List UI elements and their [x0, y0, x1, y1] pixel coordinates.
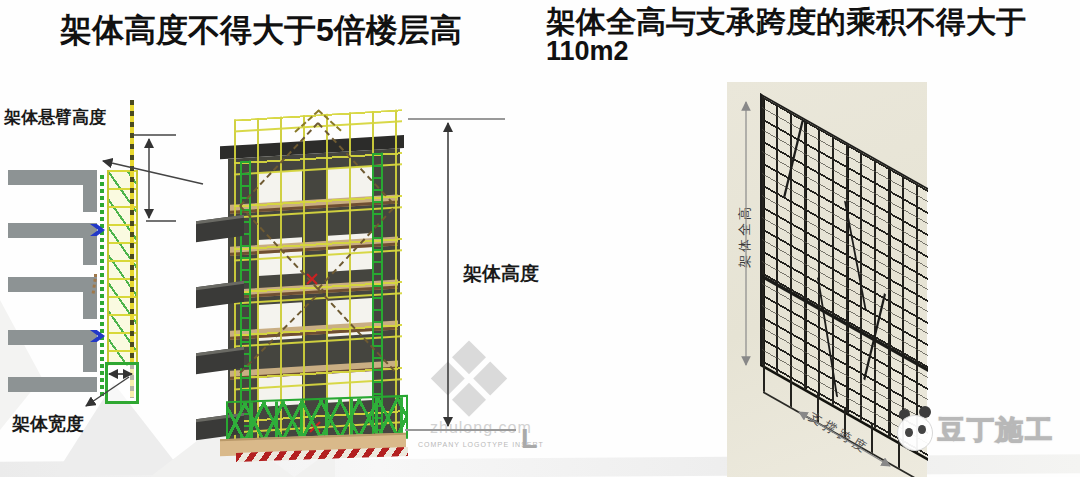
title-right-line2: 110m2 — [546, 38, 1066, 64]
brace-cross-node — [305, 272, 319, 286]
zhulong-watermark-icon — [429, 340, 508, 419]
floor-slab — [8, 170, 97, 185]
background-watermark-shape — [0, 300, 42, 430]
wire-brace — [817, 277, 838, 397]
brand-logo-text: 豆丁施工 — [938, 412, 1054, 448]
watermark-initial: L — [521, 424, 538, 455]
floor-slab-edge — [83, 185, 97, 212]
frame-height-label: 架体高度 — [463, 261, 539, 287]
cantilever-height-label: 架体悬臂高度 — [4, 106, 106, 129]
title-left-post: 倍楼层高 — [334, 12, 462, 48]
wire-brace — [783, 119, 804, 198]
floor-slab-edge — [83, 345, 97, 372]
floor-slab-edge — [83, 292, 97, 319]
watermark-brand-text: zhulong.com — [430, 419, 532, 437]
title-left-number: 5 — [316, 12, 334, 48]
floor-slab-edge — [83, 238, 97, 265]
douding-panda-eye — [905, 428, 913, 437]
douding-panda-icon — [897, 415, 933, 451]
total-height-label: 架体全高 — [736, 188, 754, 284]
scaffold-walkway-band — [762, 274, 928, 372]
floor-slab — [8, 330, 97, 345]
floor-slab — [8, 223, 97, 238]
title-left-pre: 架体高度不得大于 — [60, 12, 316, 48]
wire-brace — [844, 201, 867, 311]
floor-slab — [8, 377, 97, 392]
slide: 架体高度不得大于5倍楼层高 架体全高与支承跨度的乘积不得大于 110m2 架体悬… — [0, 0, 1080, 477]
scaffold-axis-dashed-line — [130, 100, 134, 398]
douding-panda-eye — [918, 425, 926, 434]
frame-width-label: 架体宽度 — [12, 412, 84, 436]
title-left: 架体高度不得大于5倍楼层高 — [60, 12, 530, 48]
floor-slab — [8, 277, 97, 292]
scaffold-bottom-frame — [105, 362, 139, 404]
title-right: 架体全高与支承跨度的乘积不得大于 110m2 — [546, 5, 1066, 64]
title-right-line1: 架体全高与支承跨度的乘积不得大于 — [546, 5, 1066, 38]
